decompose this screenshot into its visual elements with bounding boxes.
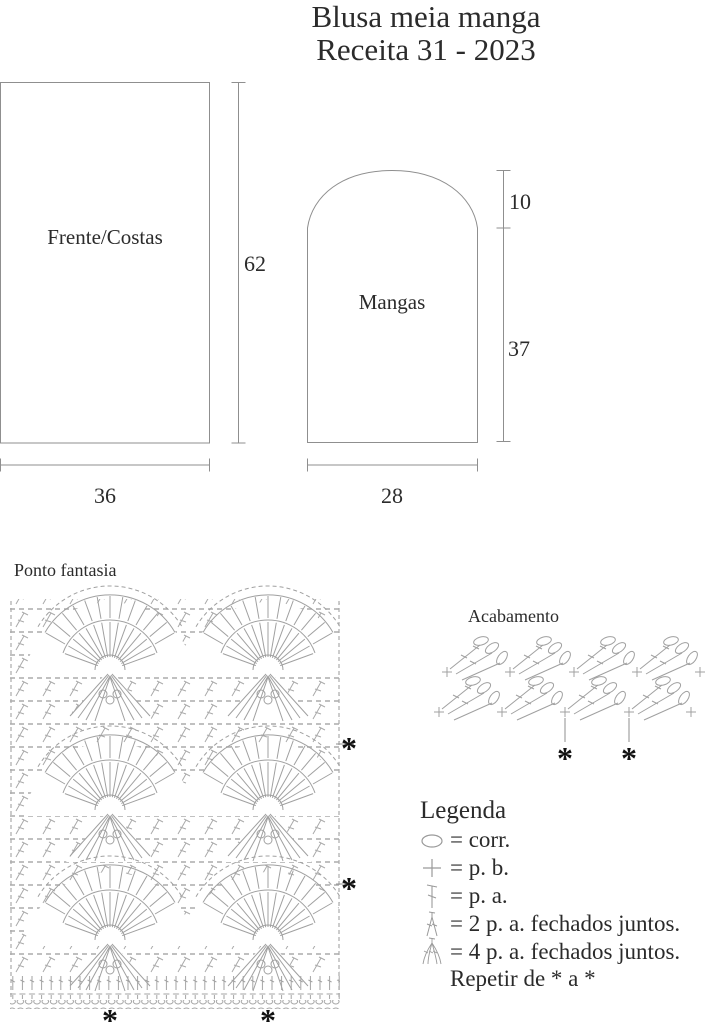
legend-repeat-note: Repetir de * a * xyxy=(450,966,708,994)
foundation-chain-row xyxy=(10,1000,340,1009)
marker-connector-lines xyxy=(565,718,629,742)
edging-motif xyxy=(497,675,565,720)
sleeve-body-height-value: 37 xyxy=(508,336,530,362)
edging-chart xyxy=(430,628,708,750)
legend-item-dc4tog: = 4 p. a. fechados juntos. xyxy=(420,938,708,966)
edging-motif xyxy=(505,635,573,680)
dim-line-36 xyxy=(1,459,210,472)
dim-line-28 xyxy=(308,459,478,472)
front-back-height-value: 62 xyxy=(244,251,266,277)
repeat-marker: * xyxy=(341,732,357,764)
edging-motif xyxy=(624,675,692,720)
edging-motif xyxy=(434,675,502,720)
edging-motif xyxy=(560,675,628,720)
sleeve-label: Mangas xyxy=(307,290,477,315)
legend-item-double-crochet: = p. a. xyxy=(420,882,708,910)
page-title: Blusa meia manga Receita 31 - 2023 xyxy=(226,0,626,66)
dc4tog-icon xyxy=(420,936,450,968)
legend-item-label: = 2 p. a. fechados juntos. xyxy=(450,911,680,937)
edging-motif xyxy=(442,635,510,680)
legend-item-dc2tog: = 2 p. a. fechados juntos. xyxy=(420,910,708,938)
edging-plus xyxy=(695,667,705,677)
repeat-marker: * xyxy=(341,872,357,904)
double-crochet-icon xyxy=(420,881,450,911)
stitch-chart-title: Ponto fantasia xyxy=(14,560,116,581)
legend: Legenda = corr. = p. b. = p. a. = 2 p. a… xyxy=(420,796,708,994)
repeat-marker: * xyxy=(260,1004,276,1024)
legend-item-label: = p. b. xyxy=(450,855,509,881)
sleeve-width-value: 28 xyxy=(359,483,425,509)
edging-chart-title: Acabamento xyxy=(468,606,559,627)
chain-icon xyxy=(420,826,450,854)
legend-item-label: = corr. xyxy=(450,827,510,853)
edging-plus xyxy=(686,707,696,717)
single-crochet-icon xyxy=(420,854,450,882)
legend-item-label: = 4 p. a. fechados juntos. xyxy=(450,939,680,965)
front-back-width-value: 36 xyxy=(72,483,138,509)
edging-motif xyxy=(632,635,700,680)
stitch-chart xyxy=(8,583,360,1024)
legend-item-chain: = corr. xyxy=(420,826,708,854)
legend-item-label: = p. a. xyxy=(450,883,508,909)
sleeve-cap-height-value: 10 xyxy=(509,189,531,215)
dc2tog-icon xyxy=(420,909,450,939)
schematic-drawing xyxy=(0,60,530,510)
repeat-marker: * xyxy=(102,1004,118,1024)
legend-item-single-crochet: = p. b. xyxy=(420,854,708,882)
edging-motif xyxy=(569,635,637,680)
base-dc-row xyxy=(10,976,340,999)
front-back-outline xyxy=(1,83,210,444)
front-back-label: Frente/Costas xyxy=(0,225,210,250)
legend-title: Legenda xyxy=(420,796,708,826)
repeat-marker: * xyxy=(621,742,637,774)
page-title-line1: Blusa meia manga xyxy=(226,0,626,33)
pattern-page: Blusa meia manga Receita 31 - 2023 Frent… xyxy=(0,0,708,1024)
repeat-marker: * xyxy=(557,742,573,774)
